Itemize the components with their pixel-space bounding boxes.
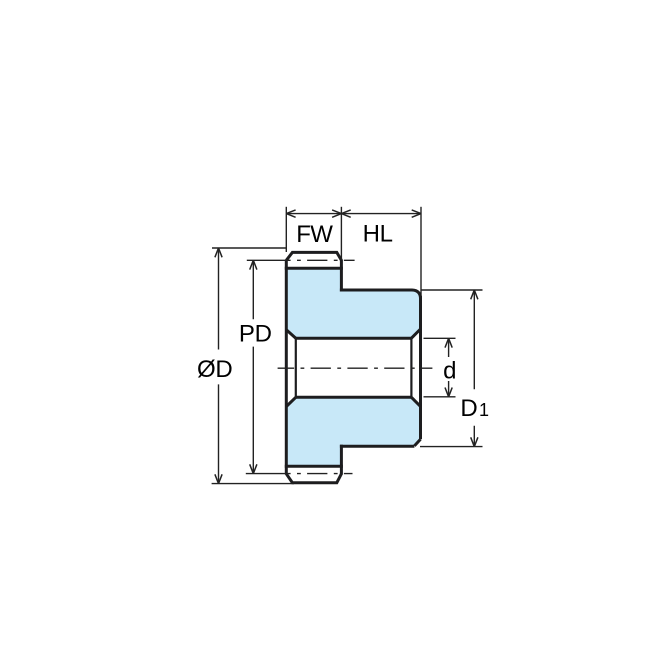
svg-text:PD: PD bbox=[239, 321, 272, 348]
svg-text:d: d bbox=[443, 357, 456, 384]
svg-text:D1: D1 bbox=[460, 395, 489, 422]
svg-text:FW: FW bbox=[296, 221, 333, 248]
svg-text:ØD: ØD bbox=[197, 356, 232, 383]
svg-text:HL: HL bbox=[363, 221, 393, 248]
